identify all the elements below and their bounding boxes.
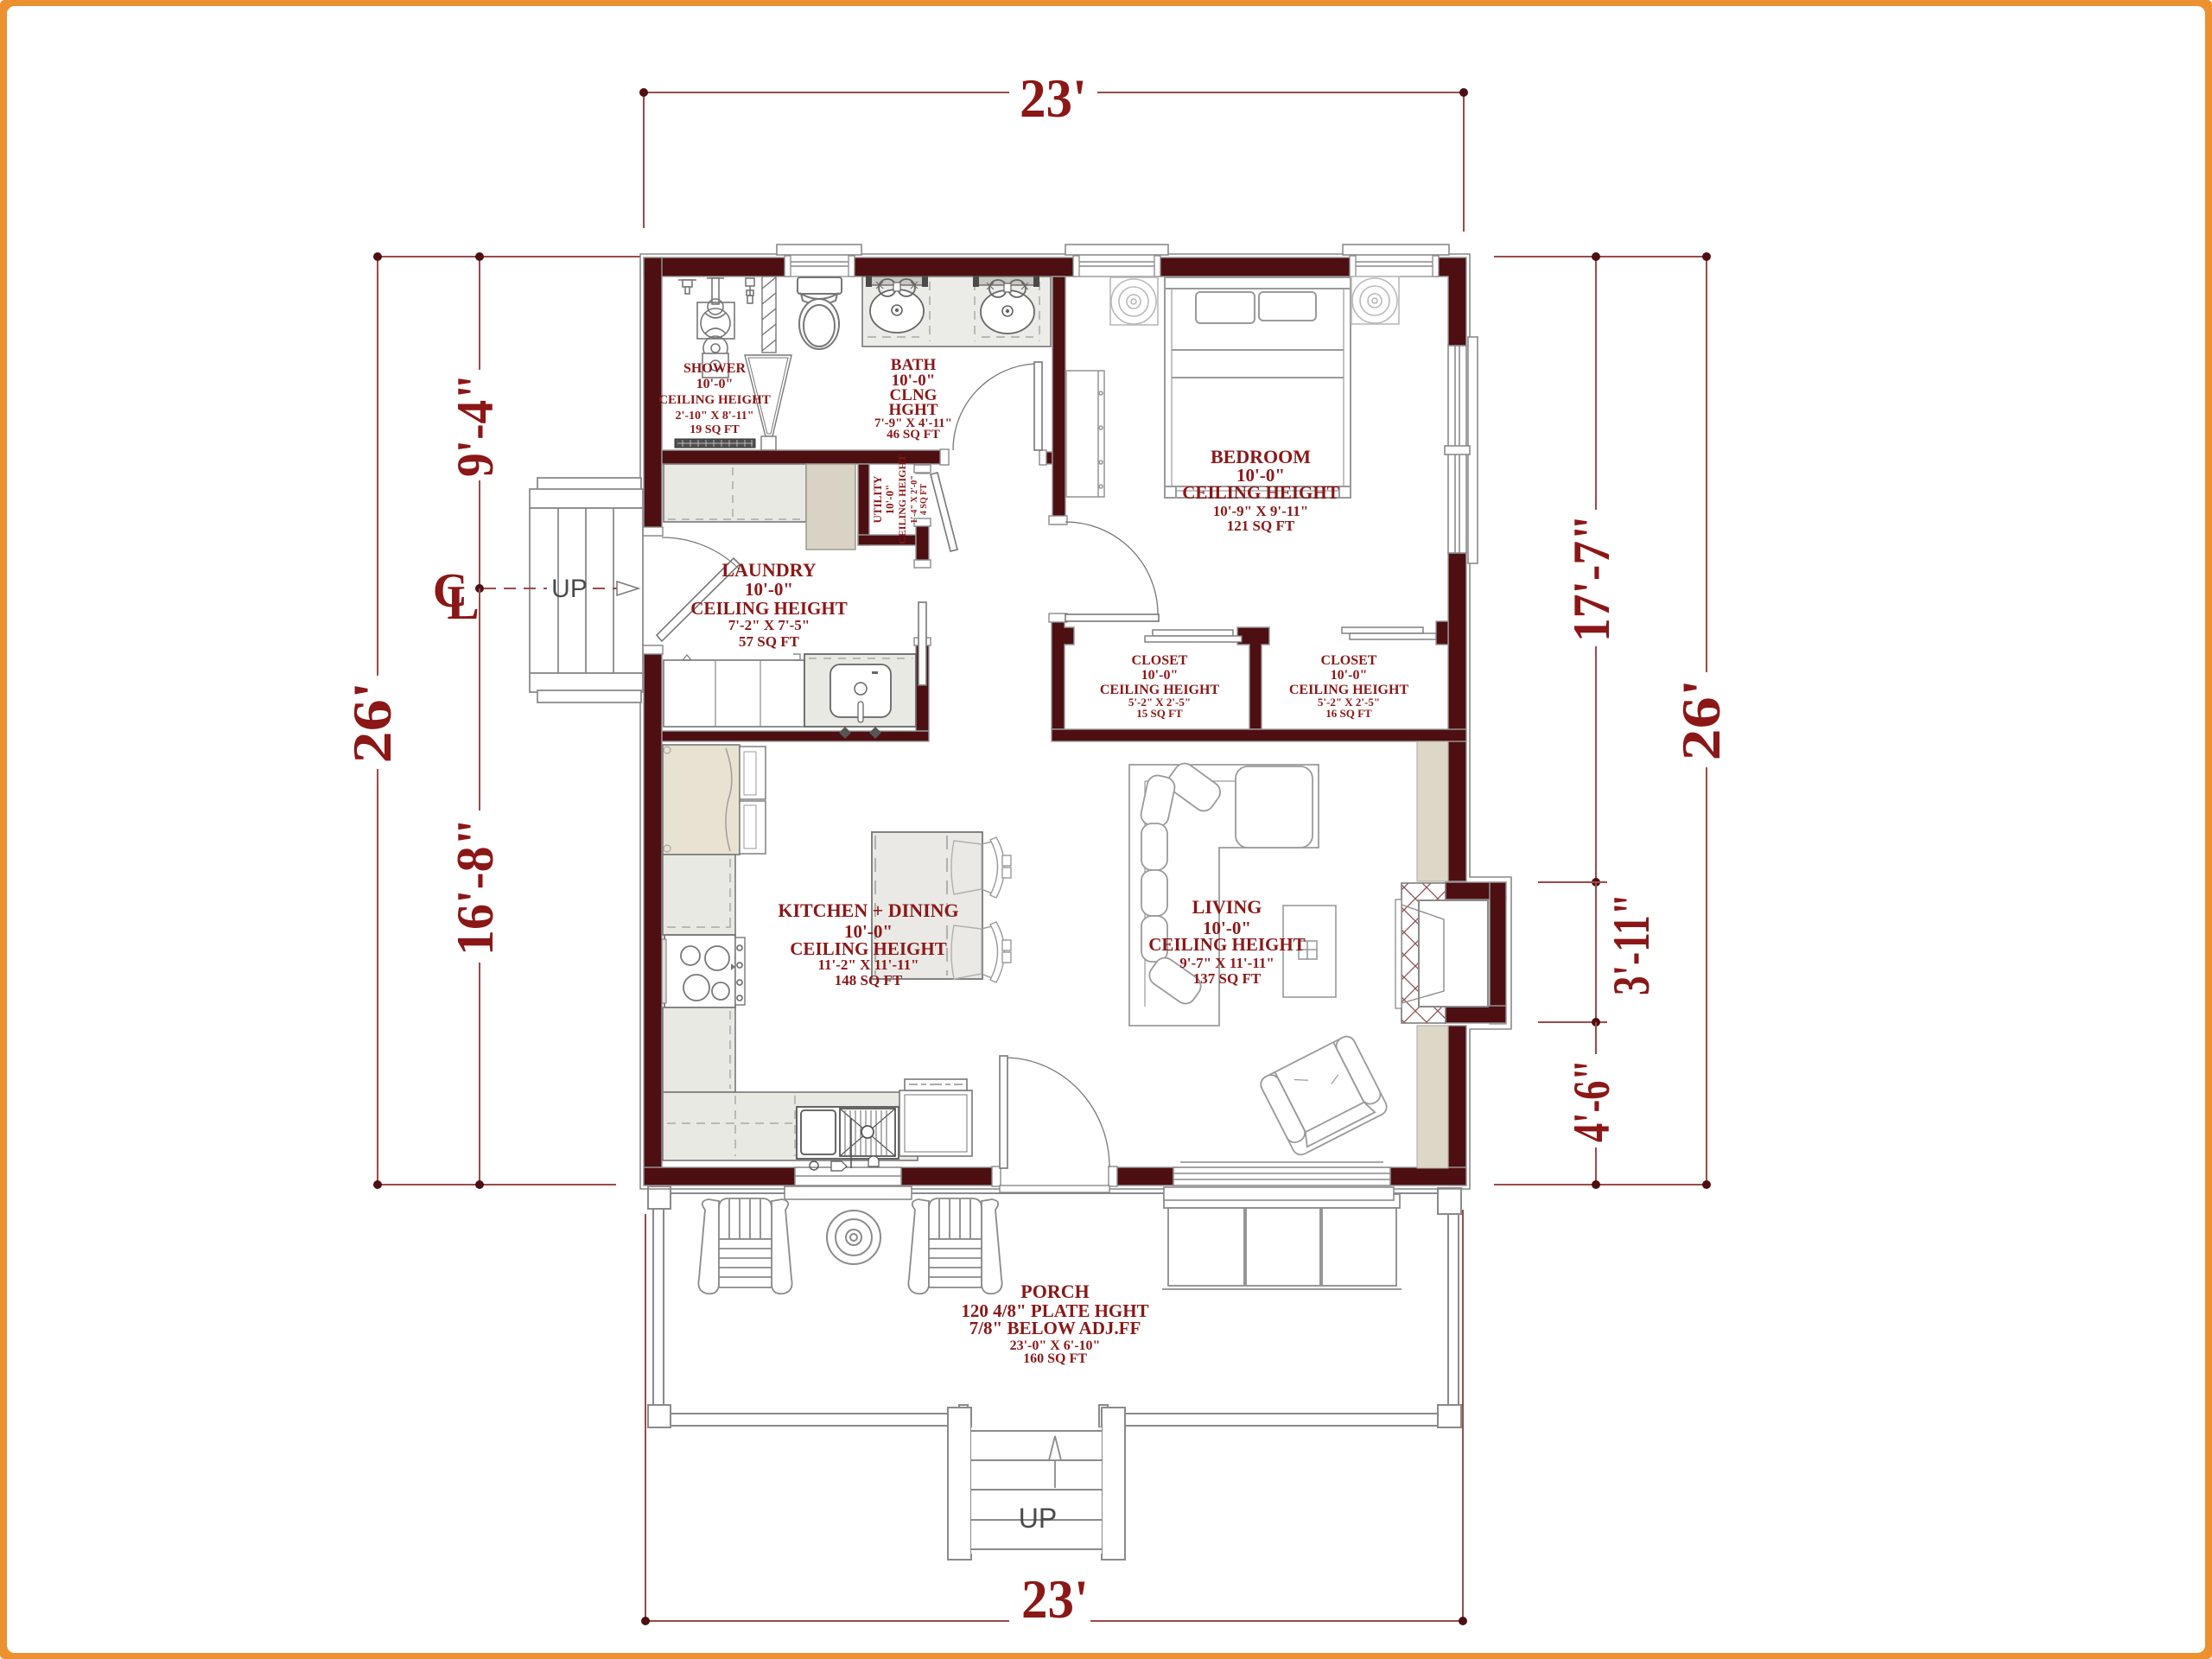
svg-text:4'-6": 4'-6" xyxy=(1563,1059,1620,1142)
svg-text:23': 23' xyxy=(1020,67,1087,129)
svg-text:CEILING HEIGHT: CEILING HEIGHT xyxy=(896,454,908,544)
svg-text:CLOSET: CLOSET xyxy=(1132,653,1188,668)
svg-text:LAUNDRY: LAUNDRY xyxy=(721,559,816,581)
svg-text:26': 26' xyxy=(341,682,403,764)
svg-text:16'-8": 16'-8" xyxy=(447,817,504,956)
svg-text:3'-11": 3'-11" xyxy=(1603,893,1660,995)
svg-text:CEILING HEIGHT: CEILING HEIGHT xyxy=(1148,934,1305,955)
svg-text:148 SQ FT: 148 SQ FT xyxy=(835,972,903,988)
svg-text:10'-0": 10'-0" xyxy=(1331,668,1368,683)
svg-text:2'-10" X 8'-11": 2'-10" X 8'-11" xyxy=(676,410,754,423)
svg-text:17'-7": 17'-7" xyxy=(1563,514,1620,642)
svg-text:11'-2" X 11'-11": 11'-2" X 11'-11" xyxy=(817,957,918,973)
svg-text:9'-7" X 11'-11": 9'-7" X 11'-11" xyxy=(1179,955,1274,971)
svg-text:10'-0": 10'-0" xyxy=(883,485,896,515)
svg-text:7'-2" X 7'-5": 7'-2" X 7'-5" xyxy=(728,617,810,633)
svg-text:46 SQ FT: 46 SQ FT xyxy=(887,428,940,442)
svg-text:19 SQ FT: 19 SQ FT xyxy=(690,423,740,436)
svg-text:UP: UP xyxy=(551,575,588,603)
svg-text:16 SQ FT: 16 SQ FT xyxy=(1325,707,1372,720)
svg-text:CEILING HEIGHT: CEILING HEIGHT xyxy=(658,393,771,407)
svg-text:UTILITY: UTILITY xyxy=(871,475,884,524)
svg-text:57 SQ FT: 57 SQ FT xyxy=(739,633,800,650)
svg-text:CEILING HEIGHT: CEILING HEIGHT xyxy=(1182,482,1338,503)
svg-text:PORCH: PORCH xyxy=(1020,1281,1089,1302)
svg-text:9'-4": 9'-4" xyxy=(447,373,504,477)
svg-text:4 SQ FT: 4 SQ FT xyxy=(919,484,929,515)
svg-text:160 SQ FT: 160 SQ FT xyxy=(1023,1351,1087,1366)
svg-text:CLOSET: CLOSET xyxy=(1321,653,1377,668)
svg-text:10'-0": 10'-0" xyxy=(696,377,734,391)
svg-text:10'-0": 10'-0" xyxy=(1141,668,1179,683)
svg-text:10'-0": 10'-0" xyxy=(745,579,793,600)
svg-text:121 SQ FT: 121 SQ FT xyxy=(1227,518,1295,534)
svg-text:SHOWER: SHOWER xyxy=(683,361,746,376)
svg-text:7/8" BELOW ADJ.FF: 7/8" BELOW ADJ.FF xyxy=(969,1318,1141,1338)
svg-text:UP: UP xyxy=(1019,1503,1057,1534)
svg-text:L: L xyxy=(447,576,479,630)
svg-text:137 SQ FT: 137 SQ FT xyxy=(1193,970,1262,987)
svg-text:LIVING: LIVING xyxy=(1192,896,1262,918)
svg-text:23': 23' xyxy=(1021,1568,1089,1630)
svg-text:1'-4" X 2'-0": 1'-4" X 2'-0" xyxy=(910,475,919,524)
svg-text:KITCHEN + DINING: KITCHEN + DINING xyxy=(778,899,958,921)
svg-text:26': 26' xyxy=(1670,679,1732,761)
svg-text:CEILING HEIGHT: CEILING HEIGHT xyxy=(690,598,847,619)
svg-text:15 SQ FT: 15 SQ FT xyxy=(1136,707,1183,720)
